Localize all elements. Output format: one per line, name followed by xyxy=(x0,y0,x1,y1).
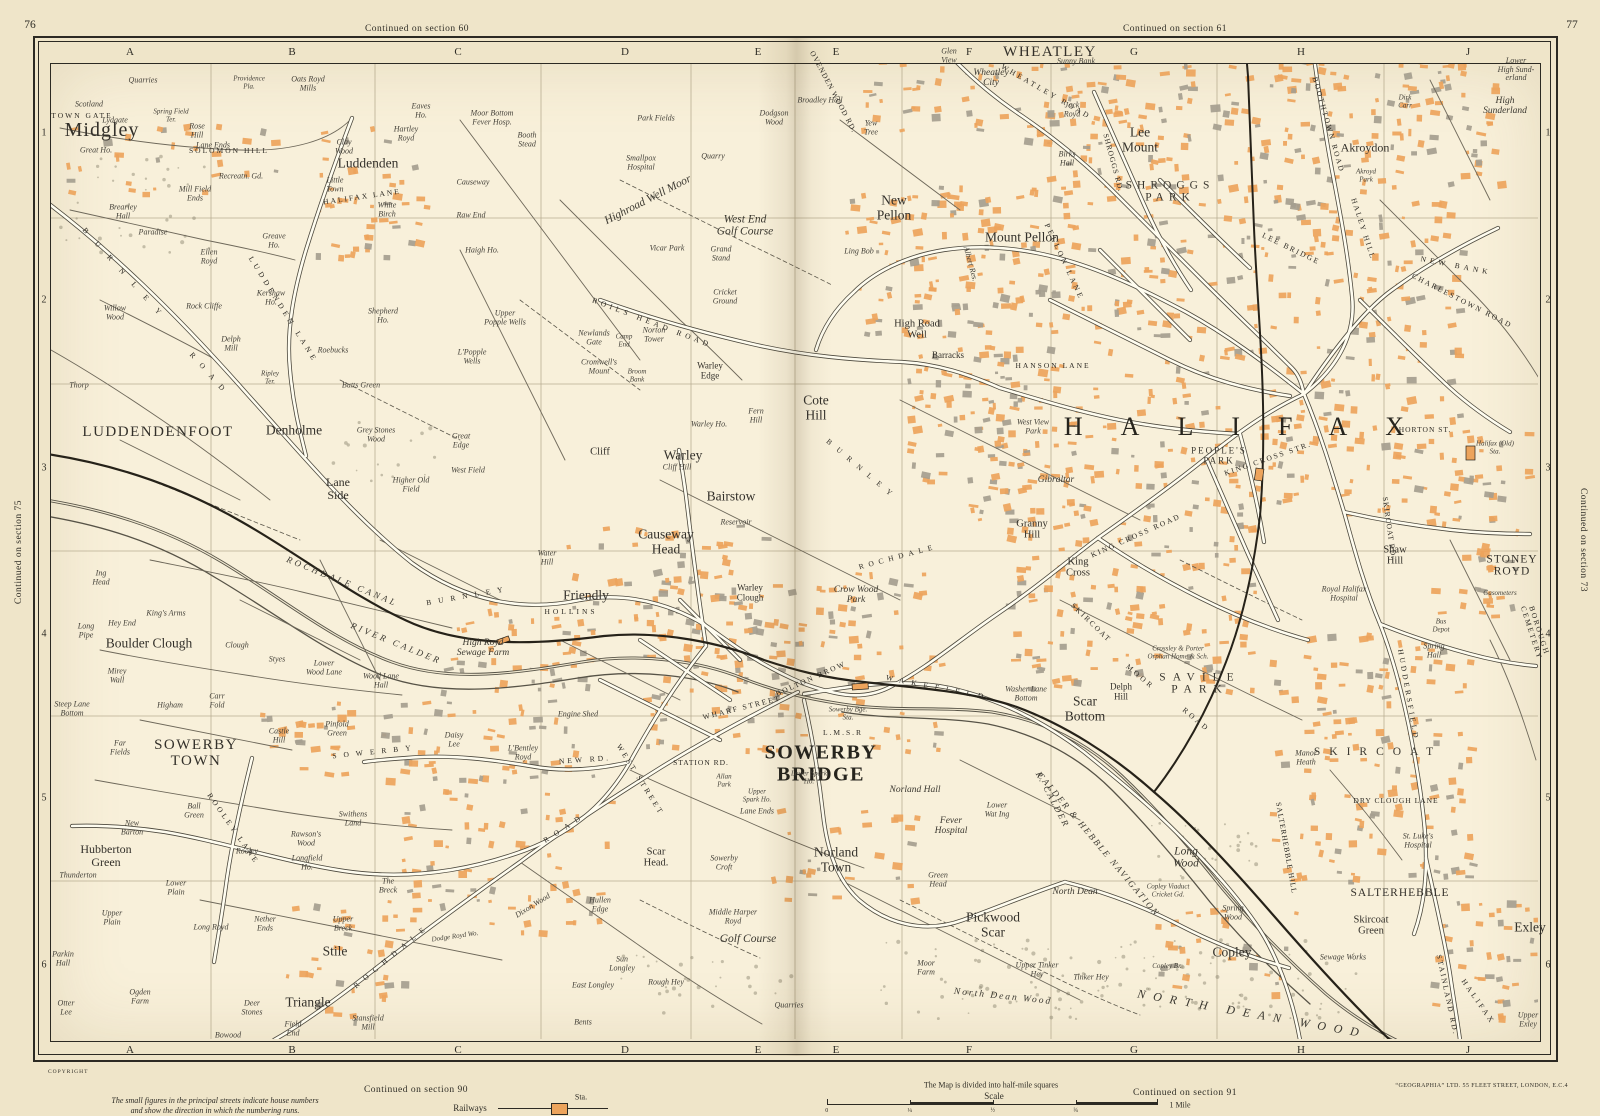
map-label-great-ho: Great Ho. xyxy=(80,147,112,156)
grid-column-letter: G xyxy=(1130,1044,1138,1056)
map-label-white-birch: White Birch xyxy=(378,201,397,218)
map-label-burnley: BURNLEY xyxy=(81,226,172,325)
map-label-salterhebble-hill: SALTERHEBBLE HILL xyxy=(1274,802,1298,895)
scale-quarter: ¼ xyxy=(908,1108,913,1114)
map-label-moor-farm: Moor Farm xyxy=(917,959,935,976)
map-label-lee-mount: Lee Mount xyxy=(1122,125,1158,154)
map-label-road: ROAD xyxy=(1181,706,1212,734)
grid-row-number: 3 xyxy=(42,463,47,474)
map-label-hubberton-green: Hubberton Green xyxy=(80,843,131,869)
scale-half: ½ xyxy=(991,1108,996,1114)
map-label-field-end: Field End xyxy=(285,1020,302,1037)
grid-column-letter: B xyxy=(288,1044,295,1056)
map-label-styes: Styes xyxy=(269,656,285,665)
map-label-allan-park: Allan Park xyxy=(716,773,731,788)
continuation-right: Continued on section 73 xyxy=(1578,488,1588,592)
map-label-dixon-wood: Dixon Wood xyxy=(514,892,552,920)
grid-row-number: 1 xyxy=(1546,128,1551,139)
map-label-lower-wood-lane: Lower Wood Lane xyxy=(306,659,342,676)
map-label-lower-wat-ing: Lower Wat Ing xyxy=(985,801,1010,818)
map-label-stainland-rd: STAINLAND RD. xyxy=(1434,954,1459,1036)
map-label-recreatn-gd: Recreatn. Gd. xyxy=(219,173,263,182)
map-label-shepherd-ho: Shepherd Ho. xyxy=(368,307,398,324)
continuation-bottom-left: Continued on section 90 xyxy=(364,1085,468,1095)
map-label-skircoat-green: Skircoat Green xyxy=(1354,915,1389,938)
map-label-sowerby-town: SOWERBY TOWN xyxy=(154,737,238,769)
station-legend-symbol xyxy=(551,1103,568,1115)
map-label-higham: Higham xyxy=(157,702,183,711)
map-label-sowerby: SOWERBY xyxy=(332,743,418,760)
map-label-roebucks: Roebucks xyxy=(318,347,349,356)
map-label-rock-cliffe: Rock Cliffe xyxy=(186,303,222,312)
map-label-savile-park: SAVILE PARK xyxy=(1159,672,1240,697)
map-label-rochdale: ROCHDALE xyxy=(858,543,938,572)
map-label-fever-hospital: Fever Hospital xyxy=(935,816,968,837)
railways-legend-label: Railways xyxy=(453,1103,487,1113)
map-label-stile: Stile xyxy=(323,945,348,960)
map-label-royal-halifax-hospital: Royal Halifax Hospital xyxy=(1322,585,1367,602)
map-label-l-bentley-royd: L'Bentley Royd xyxy=(508,744,538,761)
map-label-golf-course: Golf Course xyxy=(720,933,777,945)
map-label-barracks: Barracks xyxy=(932,351,964,361)
grid-column-letter: J xyxy=(1466,1044,1470,1056)
map-label-eaves-ho: Eaves Ho. xyxy=(411,102,430,119)
map-label-west-end-golf-course: West End Golf Course xyxy=(717,214,774,239)
wood-stipple xyxy=(59,155,1357,1020)
map-label-norland-hall: Norland Hall xyxy=(890,785,941,795)
map-label-causeway-head: Causeway Head xyxy=(638,527,693,556)
scale-mile-label: 1 Mile xyxy=(1169,1101,1190,1110)
map-label-camp-end: Camp End xyxy=(616,333,633,348)
map-label-dodgson-wood: Dodgson Wood xyxy=(760,109,789,126)
map-label-skircoat: SKIRCOAT xyxy=(1069,602,1113,644)
map-label-rose-hill: Rose Hill xyxy=(189,122,205,139)
map-label-willow-wood: Willow Wood xyxy=(104,304,126,321)
river-and-canals xyxy=(33,498,1396,1040)
map-label-copley-viaduct-cricket-gd: Copley Viaduct Cricket Gd. xyxy=(1147,883,1190,898)
map-label-crossley-porter-orphan-home-sch: Crossley & Porter Orphan Home & Sch. xyxy=(1147,645,1208,660)
map-label-long-royd: Long Royd xyxy=(194,924,229,933)
outer-frame xyxy=(33,36,1558,1062)
outer-frame-inner-line xyxy=(38,41,1551,1055)
map-label-burnley: BURNLEY xyxy=(824,438,899,503)
map-label-bents: Bents xyxy=(574,1019,592,1028)
map-label-jack-royd: Jack Royd xyxy=(1064,101,1080,118)
map-label-lane-ends: Lane Ends xyxy=(196,142,230,151)
grid-column-letter: A xyxy=(126,1044,134,1056)
map-label-town-gate: TOWN GATE xyxy=(51,112,112,120)
map-label-park-fields: Park Fields xyxy=(637,115,675,124)
grid-row-number: 4 xyxy=(42,629,47,640)
map-label-pellon-lane: PELLON LANE xyxy=(1043,222,1086,301)
map-label-ing-head: Ing Head xyxy=(92,569,109,586)
footpaths xyxy=(150,180,1302,1015)
map-label-dirk-carr: Dirk Carr xyxy=(1398,94,1412,109)
map-label-reservoir: Reservoir xyxy=(720,519,751,528)
map-label-luddendenfoot: LUDDENDENFOOT xyxy=(82,424,233,440)
map-label-north-dean: North Dean xyxy=(1052,887,1097,897)
map-label-water-hill: Water Hill xyxy=(538,549,557,566)
map-label-high-royd-sewage-farm: High Royd Sewage Farm xyxy=(457,638,510,659)
map-label-birks-hall: Birks Hall xyxy=(1059,150,1076,167)
map-label-cricket-ground: Cricket Ground xyxy=(713,288,738,305)
map-label-norton-tower: Norton Tower xyxy=(643,326,666,343)
map-label-akroyd-park: Akroyd Park xyxy=(1356,168,1376,183)
map-inner-frame xyxy=(50,63,1541,1042)
map-label-higher-old-field: Higher Old Field xyxy=(393,476,430,493)
grid-column-letter: E xyxy=(833,46,840,58)
grid-column-letter: F xyxy=(966,46,972,58)
map-label-king-cross-str: KING CROSS STR. xyxy=(1223,440,1313,478)
map-label-albert-res: Albert Res. xyxy=(961,246,979,283)
map-label-lydgate: Lydgate xyxy=(102,117,128,126)
map-label-skircoat: SKIRCOAT xyxy=(1314,746,1442,758)
continuation-left: Continued on section 75 xyxy=(14,500,24,604)
map-label-quarry: Quarry xyxy=(701,153,725,162)
map-label-sunny-bank: Sunny Bank xyxy=(1057,58,1095,67)
map-label-new-rd: NEW RD. xyxy=(559,754,612,766)
scale-tick xyxy=(827,1099,828,1105)
map-label-spring-field-ter: Spring Field Ter. xyxy=(153,108,188,123)
map-label-causeway: Causeway xyxy=(457,179,490,188)
grid-row-number: 4 xyxy=(1546,629,1551,640)
map-label-denholme: Denholme xyxy=(266,424,322,439)
map-label-king-s-arms: King's Arms xyxy=(146,610,185,619)
map-label-ellen-royd: Ellen Royd xyxy=(201,248,218,265)
map-label-upper-plain: Upper Plain xyxy=(102,909,122,926)
map-label-l-m-s-r: L.M.S.R xyxy=(823,729,863,737)
grid-column-letter: A xyxy=(126,46,134,58)
map-label-lane-side: Lane Side xyxy=(326,476,350,502)
map-label-roils-head-road: ROILS HEAD ROAD xyxy=(591,296,713,349)
map-label-scotland: Scotland xyxy=(75,101,103,110)
map-label-exley: Exley xyxy=(1514,921,1546,936)
map-label-great-edge: Great Edge xyxy=(452,432,470,449)
scale-segment xyxy=(1076,1102,1158,1105)
grid-row-number: 5 xyxy=(1546,793,1551,804)
map-label-lower-high-sund-erland: Lower High Sund- erland xyxy=(1498,57,1535,83)
grid-column-letter: E xyxy=(833,1044,840,1056)
map-label-solomon-hill: SOLOMON HILL xyxy=(189,147,269,155)
map-label-hanson-lane: HANSON LANE xyxy=(1015,362,1090,370)
map-label-st-luke-s-hospital: St. Luke's Hospital xyxy=(1403,832,1434,849)
map-label-grand-stand: Grand Stand xyxy=(711,245,732,262)
map-label-upper-spark-ho: Upper Spark Ho. xyxy=(743,788,771,803)
map-label-sewage-works: Sewage Works xyxy=(1320,954,1366,963)
map-sheet: 76 77 Continued on section 60 Continued … xyxy=(0,0,1600,1115)
left-page-number: 76 xyxy=(24,19,36,31)
map-label-castle-hill: Castle Hill xyxy=(269,727,289,744)
scale-tick xyxy=(993,1100,994,1105)
map-label-north-dean-wood: North Dean Wood xyxy=(953,987,1052,1008)
map-label-mount-pellon: Mount Pellon xyxy=(985,231,1059,246)
grid-row-number: 1 xyxy=(42,128,47,139)
map-label-washer-lane-bottom: Washer Lane Bottom xyxy=(1005,685,1047,702)
map-label-west-field: West Field xyxy=(451,467,485,476)
map-label-king-cross: King Cross xyxy=(1066,557,1090,580)
map-label-huddersfield: HUDDERSFIELD xyxy=(1396,649,1420,742)
map-label-delph-mill: Delph Mill xyxy=(221,335,241,352)
map-label-halifax-old-sta: Halifax (Old) Sta. xyxy=(1476,440,1514,455)
map-label-luddenden: Luddenden xyxy=(338,157,399,172)
grid-column-letter: E xyxy=(755,1044,762,1056)
map-label-dry-clough-lane: DRY CLOUGH LANE xyxy=(1353,797,1438,805)
grid-column-letter: C xyxy=(454,1044,461,1056)
grid-row-number: 6 xyxy=(1546,960,1551,971)
map-label-wood-lane-hall: Wood Lane Hall xyxy=(363,672,399,689)
map-label-new-pellon: New Pellon xyxy=(877,193,912,222)
map-label-highroad-well-moor: Highroad Well Moor xyxy=(603,173,694,227)
map-label-carr-fold: Carr Fold xyxy=(209,692,225,709)
map-label-hullen-edge: Hullen Edge xyxy=(589,896,611,913)
map-label-norland-town: Norland Town xyxy=(814,845,858,874)
map-label-warley: Warley xyxy=(664,449,703,464)
map-label-luddenden-lane: LUDDENDEN LANE xyxy=(247,255,320,365)
map-label-horton-st: HORTON ST. xyxy=(1399,426,1452,434)
map-label-river-calder: RIVER CALDER xyxy=(349,621,443,666)
map-label-hartley-royd: Hartley Royd xyxy=(394,125,418,142)
map-label-haley-hill: HALEY HILL xyxy=(1349,197,1377,260)
map-label-west-street: WEST STREET xyxy=(615,743,666,817)
map-label-north-dean-wood: NORTH DEAN WOOD xyxy=(1136,987,1367,1040)
map-label-dodge-royd-wo: Dodge Royd Wo. xyxy=(431,930,479,944)
map-label-upper-tinker-hey: Upper Tinker Hey xyxy=(1016,961,1059,978)
map-label-yew-tree: Yew Tree xyxy=(864,119,878,136)
map-label-granny-hill: Granny Hill xyxy=(1016,519,1048,542)
map-label-clough: Clough xyxy=(225,642,249,651)
main-roads xyxy=(33,42,1536,1040)
map-label-bowood: Bowood xyxy=(215,1032,241,1041)
scale-three-quarter: ¾ xyxy=(1074,1108,1079,1114)
grid-column-letter: E xyxy=(755,46,762,58)
map-label-mirey-wall: Mirey Wall xyxy=(108,667,127,684)
grid-column-letter: D xyxy=(621,1044,629,1056)
grid-column-letter: D xyxy=(621,46,629,58)
map-label-parkin-hall: Parkin Hall xyxy=(52,950,74,967)
map-label-gasometers: Gasometers xyxy=(1483,590,1516,598)
map-label-upper-breck: Upper Breck xyxy=(333,915,353,932)
map-label-high-sunderland: High Sunderland xyxy=(1483,96,1527,117)
grid-column-letter: G xyxy=(1130,46,1138,58)
map-label-spring-wood: Spring Wood xyxy=(1222,904,1243,921)
map-label-smallpox-hospital: Smallpox Hospital xyxy=(626,154,656,171)
map-label-l-popple-wells: L'Popple Wells xyxy=(458,348,487,365)
map-label-quarries: Quarries xyxy=(775,1002,804,1011)
grid-column-letter: B xyxy=(288,46,295,58)
map-label-grey-stones-wood: Grey Stones Wood xyxy=(357,426,396,443)
map-label-salterhebble: SALTERHEBBLE xyxy=(1350,887,1449,899)
map-label-greave-ho: Greave Ho. xyxy=(262,232,285,249)
map-label-wheatley-city: Wheatley City xyxy=(973,68,1008,89)
grid-lines xyxy=(51,64,1538,1039)
map-label-pickwood-scar: Pickwood Scar xyxy=(966,910,1020,939)
map-label-burnley: BURNLEY xyxy=(426,585,511,608)
map-label-wharf-street: WHARF STREET xyxy=(702,694,782,721)
map-label-wheatley-road: WHEATLEY ROAD xyxy=(1000,63,1093,121)
map-label-long-wood: Long Wood xyxy=(1173,846,1199,871)
grid-row-number: 5 xyxy=(42,793,47,804)
grid-column-letter: H xyxy=(1297,46,1305,58)
map-label-sun-longley: Sun Longley xyxy=(609,955,635,972)
continuation-top-right: Continued on section 61 xyxy=(1123,24,1227,34)
map-label-booth-stead: Booth Stead xyxy=(517,131,536,148)
map-label-warley-clough: Warley Clough xyxy=(737,583,764,602)
map-label-green-head: Green Head xyxy=(928,871,948,888)
map-label-mill-field-ends: Mill Field Ends xyxy=(179,185,211,202)
map-label-halifax: HALIFAX xyxy=(1064,413,1442,441)
map-label-ball-green: Ball Green xyxy=(184,802,204,819)
map-label-high-road-well: High Road Well xyxy=(894,319,940,342)
map-label-manor-heath: Manor Heath xyxy=(1295,749,1317,766)
map-label-new-bank: NEW BANK xyxy=(1420,255,1492,277)
grid-row-number: 3 xyxy=(1546,463,1551,474)
map-label-bolton-brow: BOLTON BROW xyxy=(775,660,848,698)
grid-column-letter: C xyxy=(454,46,461,58)
map-label-butts-green: Butts Green xyxy=(342,382,380,391)
map-label-rough-hey: Rough Hey xyxy=(648,979,684,988)
map-label-people-s-park: PEOPLE'S PARK xyxy=(1191,446,1247,465)
map-label-rawson-s-wood: Rawson's Wood xyxy=(291,830,321,847)
map-label-swithens-land: Swithens Land xyxy=(339,810,367,827)
continuation-top-left: Continued on section 60 xyxy=(365,24,469,34)
map-label-thunderton: Thunderton xyxy=(59,872,96,881)
map-label-nether-ends: Nether Ends xyxy=(254,915,276,932)
map-label-deer-stones: Deer Stones xyxy=(242,999,263,1016)
map-label-moor-bottom-fever-hosp: Moor Bottom Fever Hosp. xyxy=(471,109,514,126)
map-label-sowerby-bge-sta: Sowerby Bge. Sta. xyxy=(829,706,868,721)
map-label-tinker-hey: Tinker Hey xyxy=(1073,974,1108,983)
map-label-broadley-hall: Broadley Hall xyxy=(797,97,842,106)
map-label-copley-br: Copley Br. xyxy=(1152,963,1182,971)
station-markers xyxy=(497,446,1475,690)
map-label-bairstow: Bairstow xyxy=(707,490,756,505)
map-label-engine-shed: Engine Shed xyxy=(558,711,598,720)
map-label-boothtown-road: BOOTHTOWN ROAD xyxy=(1310,76,1345,174)
grid-row-number: 2 xyxy=(42,295,47,306)
map-label-brearley-hall: Brearley Hall xyxy=(109,203,137,220)
map-label-triangle: Triangle xyxy=(285,996,330,1011)
map-label-r-calder: R. CALDER xyxy=(1033,770,1071,829)
map-canvas xyxy=(0,0,1600,1115)
scale-label: Scale xyxy=(984,1091,1004,1101)
map-label-rochdale: ROCHDALE xyxy=(352,922,431,990)
scale-zero: 0 xyxy=(825,1108,828,1114)
map-label-halifax: HALIFAX xyxy=(1459,978,1496,1026)
map-label-oats-royd-mills: Oats Royd Mills xyxy=(291,75,325,92)
publisher-credit: “GEOGRAPHIA” LTD. 55 FLEET STREET, LONDO… xyxy=(1395,1083,1568,1089)
map-label-halifax-lane: HALIFAX LANE xyxy=(323,188,402,207)
map-label-hey-end: Hey End xyxy=(108,620,136,629)
map-label-cromwell-s-mount: Cromwell's Mount xyxy=(581,358,617,375)
map-label-warley-ho: Warley Ho. xyxy=(691,421,727,430)
map-label-ovenden-wood-rd: OVENDEN WOOD RD. xyxy=(808,50,858,135)
continuation-bottom-right: Continued on section 91 xyxy=(1133,1088,1237,1098)
map-label-skircoat-rd: SKIRCOAT RD. xyxy=(1381,496,1398,559)
map-label-lane-ends: Lane Ends xyxy=(740,808,774,817)
map-label-upper-exley: Upper Exley xyxy=(1518,1011,1538,1028)
half-mile-note: The Map is divided into half-mile square… xyxy=(924,1081,1058,1090)
map-label-copley: Copley xyxy=(1213,946,1252,961)
map-label-cliff-hill: Cliff Hill xyxy=(663,464,692,473)
map-label-road: ROAD xyxy=(542,811,588,845)
map-label-upper-popple-wells: Upper Popple Wells xyxy=(484,309,526,326)
map-label-crow-wood-park: Crow Wood Park xyxy=(834,585,878,606)
map-label-wakefield: WAKEFIELD xyxy=(885,674,991,702)
map-label-the-breck: The Breck xyxy=(379,877,397,894)
house-number-note: The small figures in the principal stree… xyxy=(111,1096,318,1116)
map-label-wheatley: WHEATLEY xyxy=(1003,44,1097,60)
map-label-charlestown-road: CHARLESTOWN ROAD xyxy=(1410,272,1513,330)
grid-column-letter: J xyxy=(1466,46,1470,58)
map-label-pinfold-green: Pinfold Green xyxy=(325,720,349,737)
map-label-providence-pla: Providence Pla. xyxy=(233,75,265,90)
map-label-friendly: Friendly xyxy=(563,589,609,604)
map-label-shroggs-park: SHROGGS PARK xyxy=(1126,180,1215,205)
grid-row-number: 2 xyxy=(1546,295,1551,306)
copyright-note: COPYRIGHT xyxy=(48,1069,88,1075)
map-label-west-view-park: West View Park xyxy=(1017,418,1049,435)
map-label-new-barton: New Barton xyxy=(121,819,143,836)
map-label-longfield-ho: Longfield Ho. xyxy=(292,854,323,871)
grid-column-letter: H xyxy=(1297,1044,1305,1056)
map-label-east-longley: East Longley xyxy=(572,982,614,991)
map-label-quarries: Quarries xyxy=(129,77,158,86)
map-label-road: ROAD xyxy=(188,351,232,399)
map-label-rochdale-canal: ROCHDALE CANAL xyxy=(285,555,399,609)
map-label-king-cross-road: KING CROSS ROAD xyxy=(1090,512,1182,559)
right-page-number: 77 xyxy=(1566,19,1578,31)
map-label-glen-view: Glen View xyxy=(941,47,957,64)
minor-roads xyxy=(33,80,1540,1024)
map-label-calder-hebble-navigation: CALDER & HEBBLE NAVIGATION xyxy=(1035,771,1161,919)
station-legend-label: Sta. xyxy=(575,1093,587,1102)
map-label-lee-bridge: LEE BRIDGE xyxy=(1261,231,1322,266)
map-label-scar-head: Scar Head. xyxy=(644,847,669,870)
map-label-vicar-park: Vicar Park xyxy=(650,245,685,254)
map-label-moor: MOOR xyxy=(1124,663,1156,691)
map-label-cote-hill: Cote Hill xyxy=(803,393,829,422)
railways xyxy=(33,64,1390,1040)
map-label-shaw-hill: Shaw Hill xyxy=(1383,545,1406,568)
map-label-little-town: Little Town xyxy=(326,176,343,193)
map-label-ripley-ter: Ripley Ter. xyxy=(261,370,279,385)
map-label-stansfield-mill: Stansfield Mill xyxy=(352,1014,384,1031)
map-label-far-fields: Far Fields xyxy=(110,739,130,756)
map-label-sowerby-bridge: SOWERBY BRIDGE xyxy=(765,742,878,785)
map-label-hollins: HOLLINS xyxy=(544,608,597,616)
map-label-long-pipe: Long Pipe xyxy=(78,622,94,639)
map-label-cliff: Cliff xyxy=(590,446,610,457)
map-label-fern-hill: Fern Hill xyxy=(748,407,764,424)
scale-segment xyxy=(910,1102,993,1105)
map-label-warley-edge: Warley Edge xyxy=(697,361,723,380)
grid-row-number: 6 xyxy=(42,960,47,971)
map-label-clay-wood: Clay Wood xyxy=(335,138,353,155)
map-label-gibraltar: Gibraltar xyxy=(1038,475,1074,485)
map-label-broom-bank: Broom Bank xyxy=(628,368,647,383)
map-label-station-rd: STATION RD. xyxy=(673,759,729,767)
map-label-boulder-clough: Boulder Clough xyxy=(106,637,193,652)
map-label-thorp: Thorp xyxy=(69,382,89,391)
map-label-scar-bottom: Scar Bottom xyxy=(1065,694,1106,723)
map-label-raw-end: Raw End xyxy=(456,212,485,221)
map-label-daisy-lee: Daisy Lee xyxy=(445,731,464,748)
map-label-otter-lee: Otter Lee xyxy=(58,999,75,1016)
map-label-lower-plain: Lower Plain xyxy=(166,879,186,896)
map-label-sowerby-croft: Sowerby Croft xyxy=(710,854,738,871)
page-fold-shadow xyxy=(758,38,832,1056)
map-label-middle-harper-royd: Middle Harper Royd xyxy=(709,908,757,925)
